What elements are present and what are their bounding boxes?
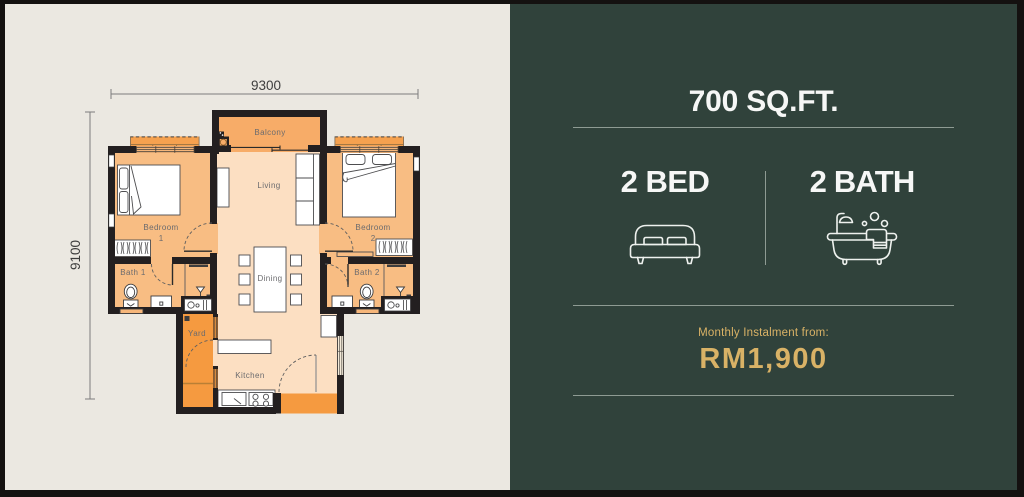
svg-text:Bedroom: Bedroom xyxy=(355,223,390,232)
svg-text:Balcony: Balcony xyxy=(254,128,285,137)
svg-text:9100: 9100 xyxy=(68,240,83,270)
svg-text:Living: Living xyxy=(257,181,280,190)
svg-text:Bath 1: Bath 1 xyxy=(120,268,146,277)
svg-text:Kitchen: Kitchen xyxy=(235,371,264,380)
svg-text:1: 1 xyxy=(159,234,164,243)
svg-text:2: 2 xyxy=(371,234,376,243)
svg-text:Yard: Yard xyxy=(188,329,206,338)
svg-text:Bedroom: Bedroom xyxy=(143,223,178,232)
svg-text:9300: 9300 xyxy=(251,78,281,93)
svg-text:Bath 2: Bath 2 xyxy=(354,268,380,277)
svg-text:Dining: Dining xyxy=(257,274,282,283)
